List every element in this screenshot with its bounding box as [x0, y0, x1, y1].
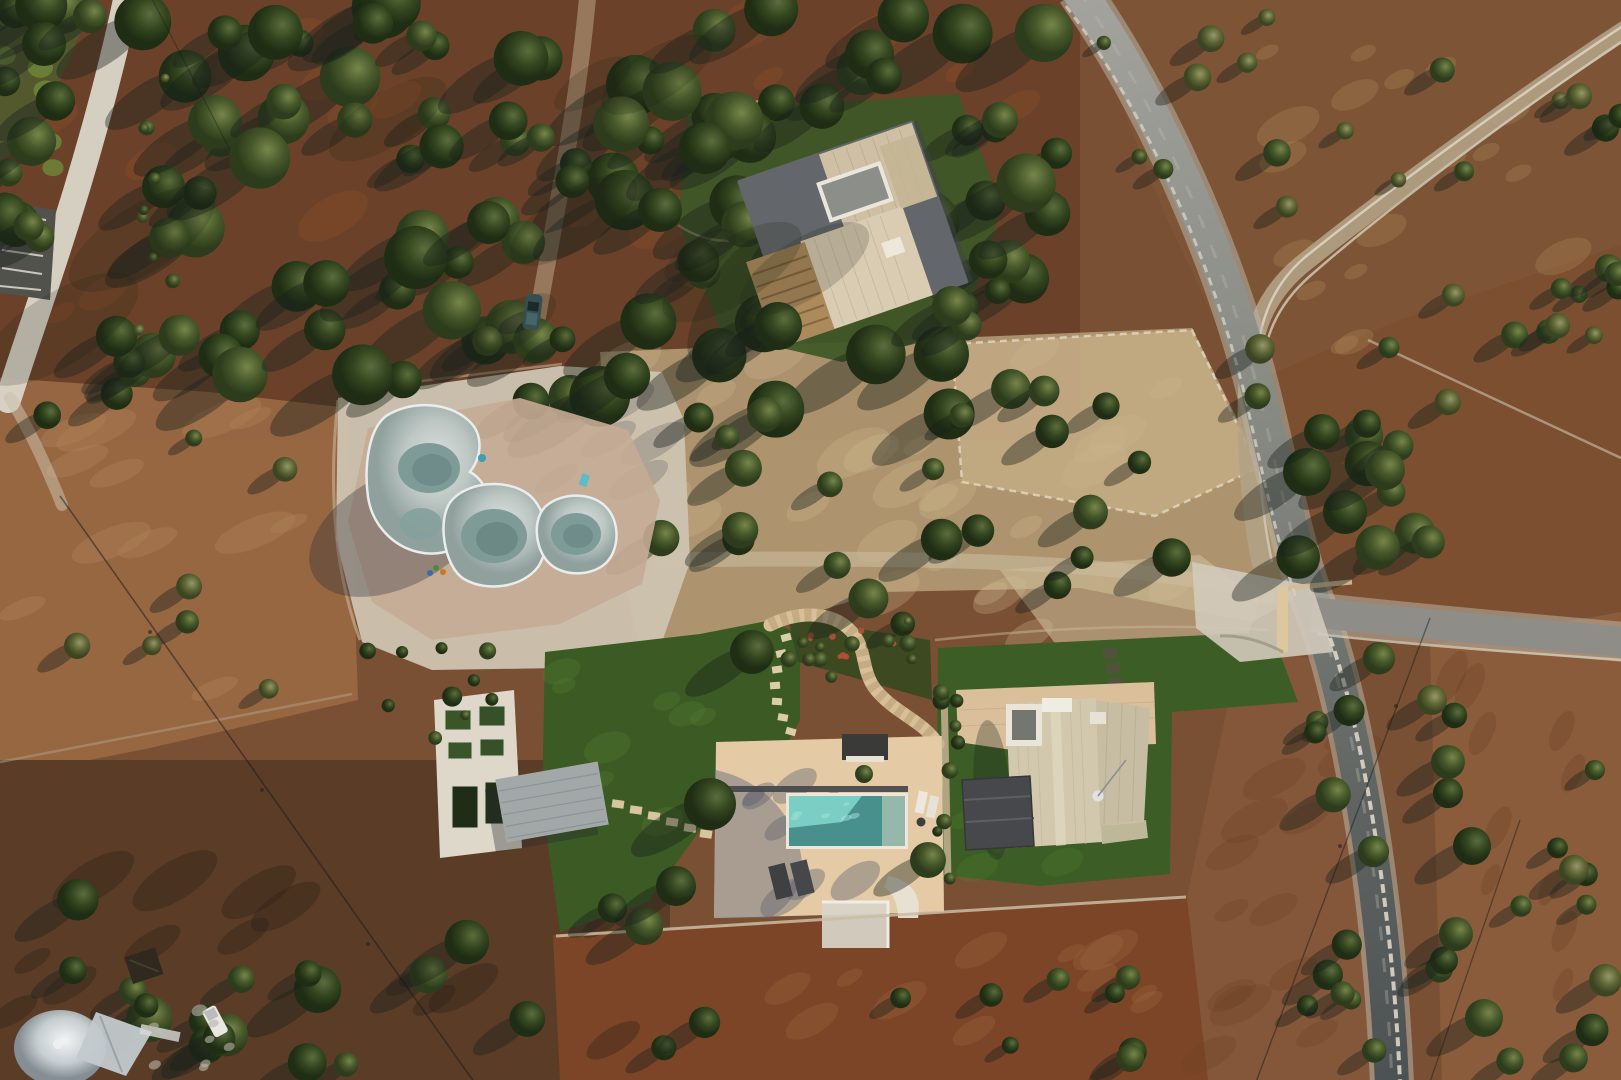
raised-bed	[479, 706, 505, 726]
chimney	[1090, 712, 1106, 724]
bin-blue	[427, 570, 433, 576]
roof-courtyard	[1012, 710, 1036, 740]
rect-shape	[1106, 663, 1120, 673]
solar-panels	[962, 776, 1034, 850]
aerial-photo-canvas	[0, 0, 1621, 1080]
rect-shape	[1103, 648, 1117, 658]
power-pole	[366, 942, 370, 946]
power-pole	[1394, 704, 1398, 708]
aerial-photo	[0, 0, 1621, 1080]
rect-shape	[700, 829, 713, 839]
rect-shape	[612, 799, 625, 809]
rect-shape	[770, 682, 780, 690]
dome-bowl-inner	[412, 454, 452, 486]
gate-pillar	[1277, 586, 1288, 652]
kitchen-counter	[846, 756, 884, 762]
bin-green	[433, 565, 439, 571]
cone-tip	[53, 1039, 63, 1049]
dome-bowl-inner	[476, 522, 518, 556]
side-table	[917, 818, 926, 827]
chimney	[1042, 698, 1072, 712]
raised-bed	[480, 739, 504, 756]
turquoise-table	[478, 454, 486, 462]
shade-beam	[716, 786, 908, 792]
rect-shape	[772, 665, 783, 673]
dome-bowl-inner	[563, 524, 593, 548]
villa-west-wall	[944, 688, 948, 880]
rect-shape	[772, 698, 782, 706]
power-pole	[1338, 844, 1342, 848]
dome-bowl	[400, 508, 442, 540]
power-pole	[260, 788, 264, 792]
power-pole	[148, 630, 152, 634]
bin-orange	[440, 569, 446, 575]
pool-tanning-shelf	[882, 796, 905, 846]
raised-bed-dark	[452, 786, 478, 828]
patio-tree	[855, 765, 873, 783]
pool-terrace-area	[714, 734, 944, 948]
raised-bed	[448, 742, 472, 759]
rect-shape	[630, 805, 643, 815]
pergola	[822, 902, 888, 948]
